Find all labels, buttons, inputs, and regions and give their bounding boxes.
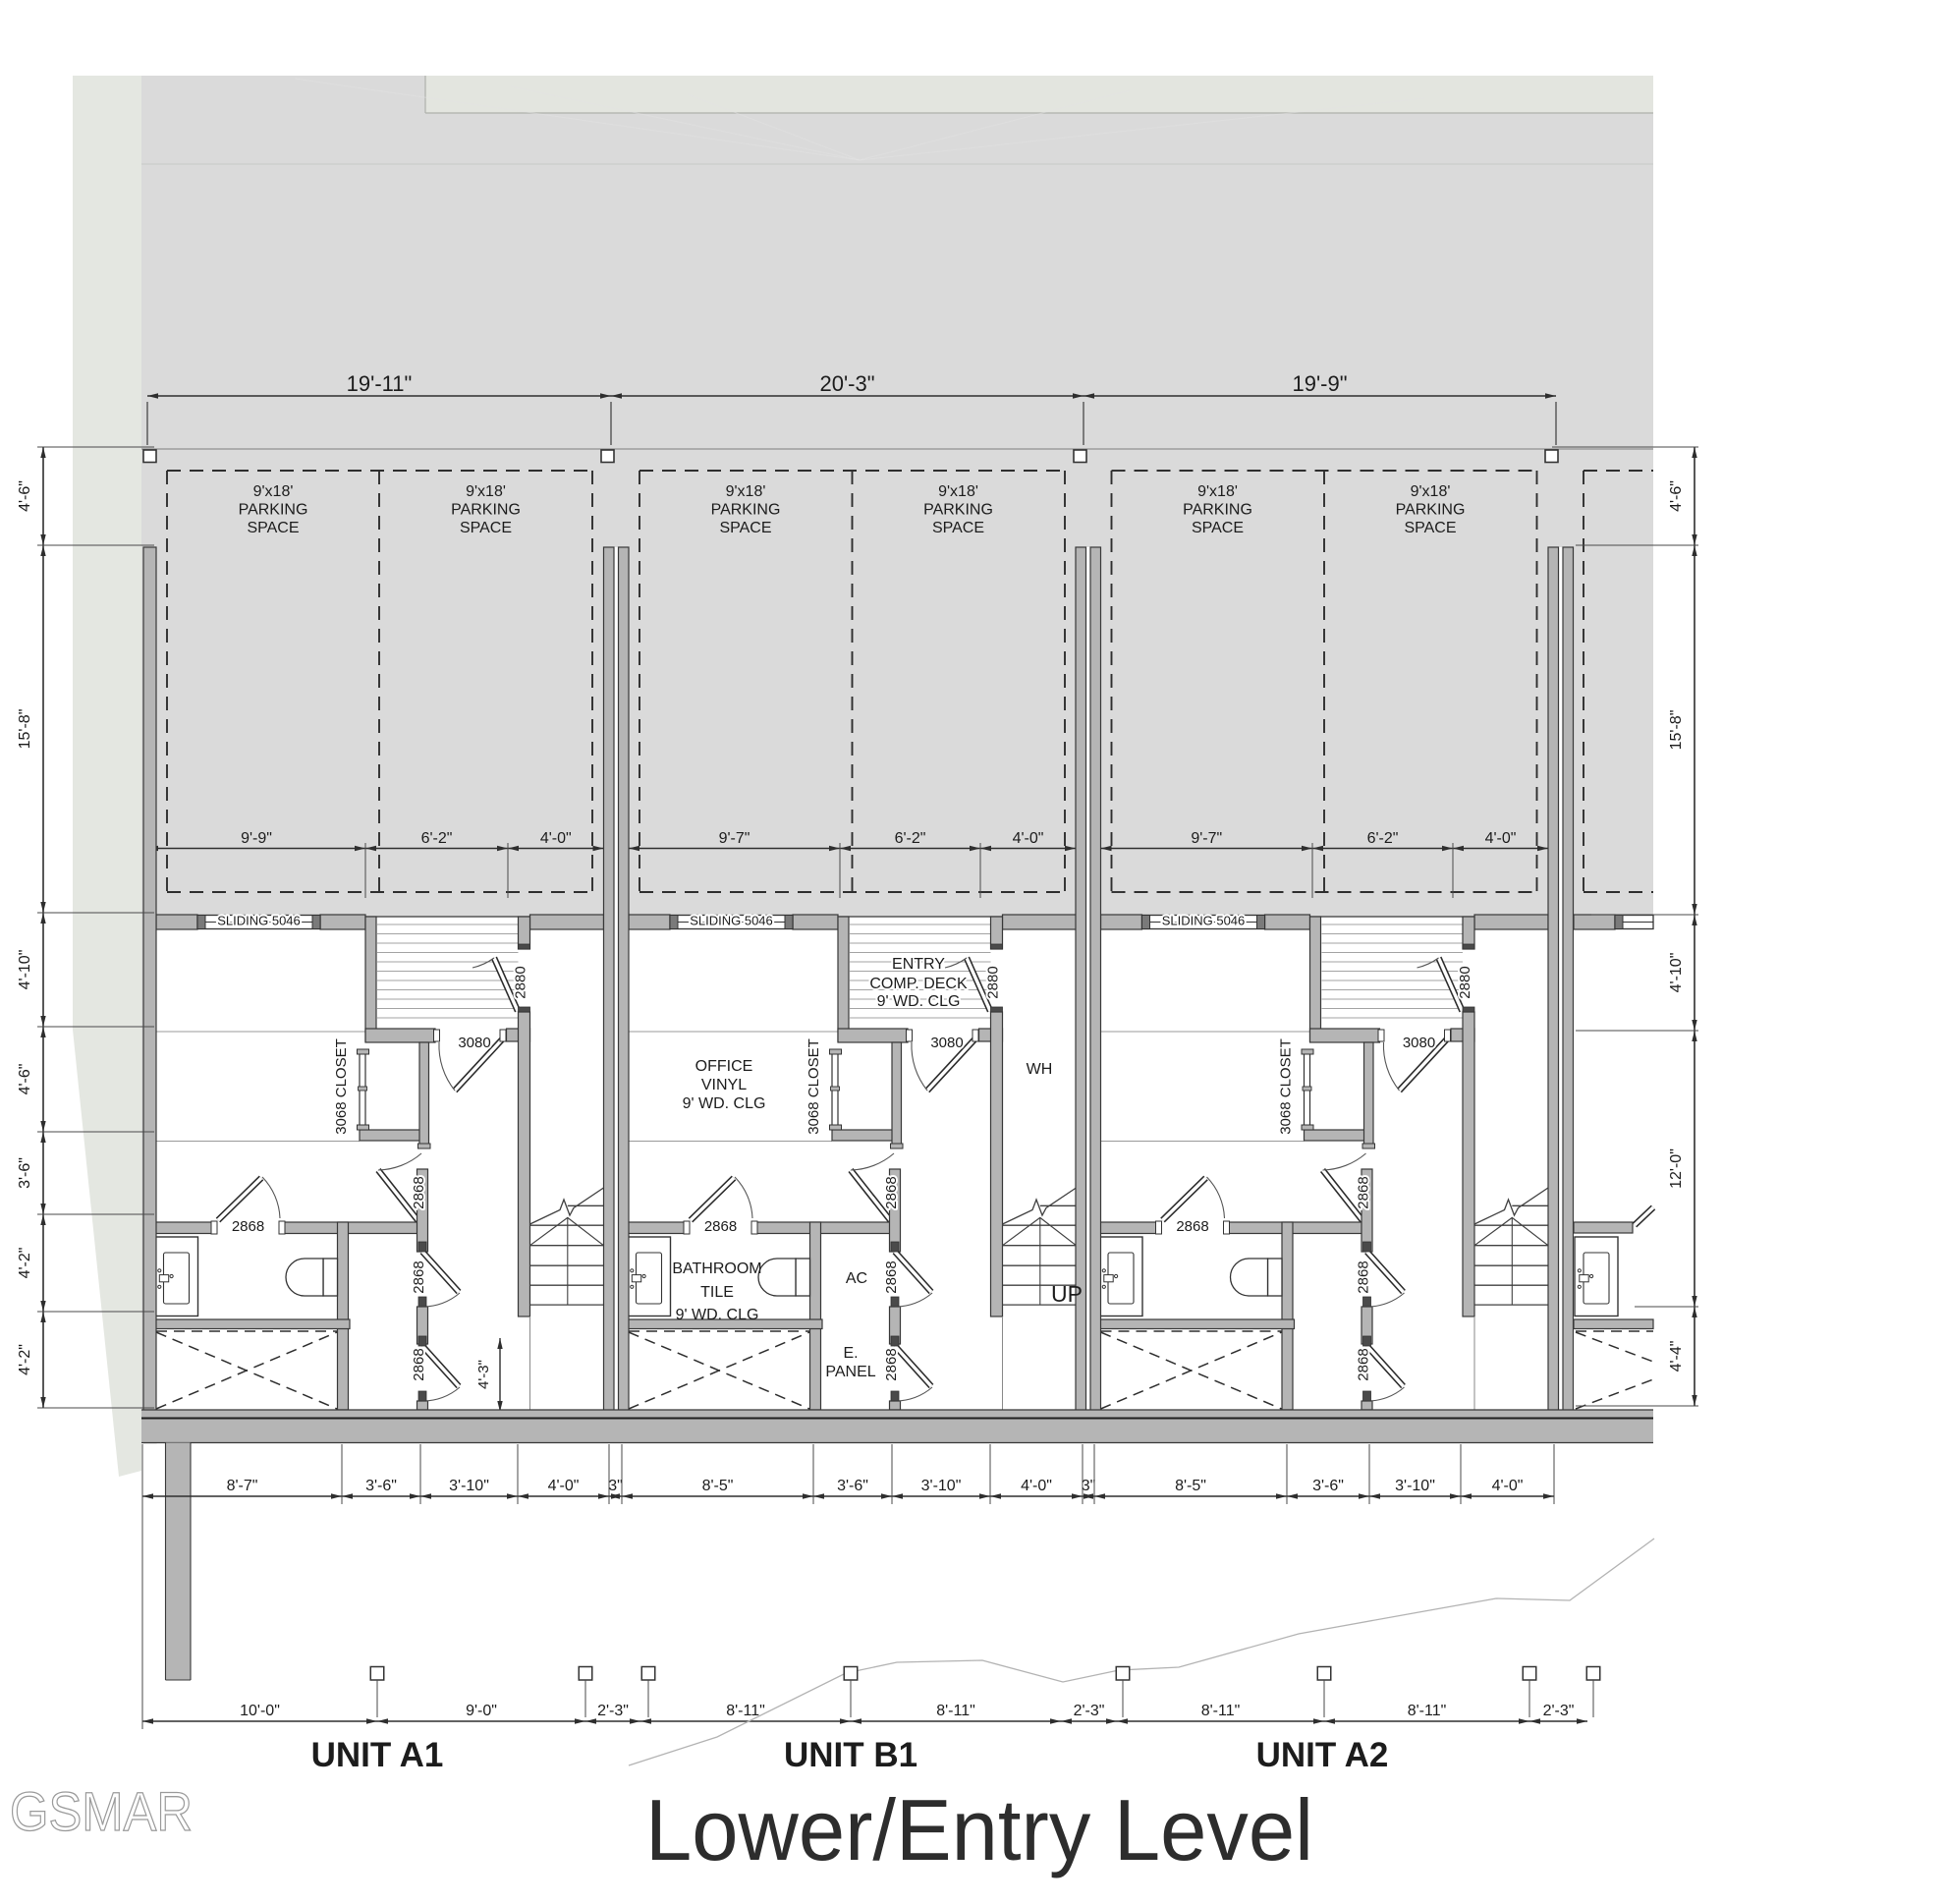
svg-text:UP: UP xyxy=(1051,1281,1083,1307)
svg-text:2'-3": 2'-3" xyxy=(1074,1703,1105,1719)
svg-text:9'-7": 9'-7" xyxy=(1191,830,1222,847)
svg-text:9'x18': 9'x18' xyxy=(466,483,506,500)
svg-text:UNIT A2: UNIT A2 xyxy=(1256,1736,1389,1774)
svg-text:2868: 2868 xyxy=(704,1218,737,1235)
svg-text:9' WD. CLG: 9' WD. CLG xyxy=(877,993,961,1010)
svg-text:UNIT B1: UNIT B1 xyxy=(784,1736,917,1774)
svg-text:6'-2": 6'-2" xyxy=(1367,830,1399,847)
svg-text:9'x18': 9'x18' xyxy=(938,483,978,500)
svg-text:12'-0": 12'-0" xyxy=(1668,1148,1685,1189)
svg-text:4'-6": 4'-6" xyxy=(17,1064,33,1095)
svg-text:8'-7": 8'-7" xyxy=(227,1478,258,1494)
svg-text:AC: AC xyxy=(846,1270,867,1287)
svg-text:3080: 3080 xyxy=(458,1035,490,1051)
svg-text:UNIT A1: UNIT A1 xyxy=(311,1736,444,1774)
svg-text:SLIDING 5046: SLIDING 5046 xyxy=(690,914,773,928)
svg-text:3": 3" xyxy=(1082,1478,1096,1494)
svg-text:2868: 2868 xyxy=(411,1176,427,1208)
svg-text:2880: 2880 xyxy=(513,966,529,998)
svg-text:9'x18': 9'x18' xyxy=(726,483,766,500)
svg-text:6'-2": 6'-2" xyxy=(421,830,453,847)
svg-text:SPACE: SPACE xyxy=(247,520,299,536)
svg-text:2868: 2868 xyxy=(411,1260,427,1293)
svg-text:GSMAR: GSMAR xyxy=(10,1780,193,1842)
svg-text:15'-8": 15'-8" xyxy=(17,709,33,750)
svg-text:3'-6": 3'-6" xyxy=(1312,1478,1344,1494)
svg-text:4'-10": 4'-10" xyxy=(17,950,33,990)
svg-text:PANEL: PANEL xyxy=(825,1364,875,1380)
svg-text:2868: 2868 xyxy=(1356,1348,1372,1380)
svg-text:SPACE: SPACE xyxy=(460,520,512,536)
svg-text:PARKING: PARKING xyxy=(1396,502,1466,519)
svg-text:6'-2": 6'-2" xyxy=(895,830,926,847)
svg-text:8'-11": 8'-11" xyxy=(1201,1703,1241,1719)
svg-text:4'-6": 4'-6" xyxy=(17,480,33,512)
svg-text:8'-11": 8'-11" xyxy=(1408,1703,1447,1719)
svg-text:4'-6": 4'-6" xyxy=(1668,480,1685,512)
svg-text:4'-3": 4'-3" xyxy=(475,1360,492,1389)
svg-text:9'x18': 9'x18' xyxy=(253,483,294,500)
svg-text:2868: 2868 xyxy=(883,1348,900,1380)
svg-text:3068 CLOSET: 3068 CLOSET xyxy=(1278,1038,1295,1135)
svg-text:19'-11": 19'-11" xyxy=(347,371,413,396)
svg-text:ENTRY: ENTRY xyxy=(892,956,945,973)
svg-text:BATHROOM: BATHROOM xyxy=(672,1260,761,1277)
svg-text:2880: 2880 xyxy=(1457,966,1473,998)
svg-text:9'x18': 9'x18' xyxy=(1411,483,1451,500)
svg-text:4'-0": 4'-0" xyxy=(1492,1478,1524,1494)
svg-text:20'-3": 20'-3" xyxy=(819,371,874,396)
svg-text:PARKING: PARKING xyxy=(239,502,308,519)
svg-text:2868: 2868 xyxy=(1176,1218,1208,1235)
svg-text:SLIDING 5046: SLIDING 5046 xyxy=(217,914,301,928)
svg-text:9'-7": 9'-7" xyxy=(719,830,750,847)
svg-text:4'-2": 4'-2" xyxy=(17,1248,33,1279)
svg-text:3080: 3080 xyxy=(930,1035,963,1051)
svg-text:3'-10": 3'-10" xyxy=(1395,1478,1435,1494)
svg-text:3068 CLOSET: 3068 CLOSET xyxy=(806,1038,822,1135)
svg-text:9' WD. CLG: 9' WD. CLG xyxy=(676,1307,759,1323)
svg-text:SLIDING 5046: SLIDING 5046 xyxy=(1162,914,1246,928)
svg-text:2868: 2868 xyxy=(232,1218,264,1235)
svg-text:COMP. DECK: COMP. DECK xyxy=(869,976,968,992)
svg-text:SPACE: SPACE xyxy=(1404,520,1456,536)
svg-text:10'-0": 10'-0" xyxy=(240,1703,280,1719)
svg-text:4'-0": 4'-0" xyxy=(1021,1478,1052,1494)
svg-text:3068 CLOSET: 3068 CLOSET xyxy=(333,1038,350,1135)
svg-text:3": 3" xyxy=(608,1478,623,1494)
svg-text:2880: 2880 xyxy=(985,966,1002,998)
svg-text:E.: E. xyxy=(843,1345,858,1362)
svg-text:PARKING: PARKING xyxy=(451,502,521,519)
svg-text:2'-3": 2'-3" xyxy=(1543,1703,1575,1719)
svg-text:PARKING: PARKING xyxy=(1183,502,1252,519)
svg-text:4'-4": 4'-4" xyxy=(1668,1341,1685,1372)
svg-text:PARKING: PARKING xyxy=(923,502,993,519)
svg-text:4'-2": 4'-2" xyxy=(17,1344,33,1375)
svg-text:19'-9": 19'-9" xyxy=(1292,371,1347,396)
svg-text:2868: 2868 xyxy=(1356,1176,1372,1208)
svg-text:3'-6": 3'-6" xyxy=(17,1157,33,1189)
svg-text:3'-6": 3'-6" xyxy=(365,1478,397,1494)
svg-text:VINYL: VINYL xyxy=(701,1077,747,1093)
svg-text:2868: 2868 xyxy=(411,1348,427,1380)
svg-text:SPACE: SPACE xyxy=(932,520,984,536)
svg-text:3'-10": 3'-10" xyxy=(449,1478,489,1494)
svg-text:2'-3": 2'-3" xyxy=(597,1703,629,1719)
svg-text:4'-0": 4'-0" xyxy=(1485,830,1517,847)
svg-text:8'-5": 8'-5" xyxy=(702,1478,734,1494)
svg-text:4'-0": 4'-0" xyxy=(540,830,572,847)
svg-text:TILE: TILE xyxy=(700,1284,734,1301)
svg-text:9'-9": 9'-9" xyxy=(241,830,272,847)
svg-text:3'-10": 3'-10" xyxy=(921,1478,962,1494)
svg-text:9' WD. CLG: 9' WD. CLG xyxy=(683,1095,766,1112)
svg-text:4'-0": 4'-0" xyxy=(548,1478,580,1494)
svg-text:Lower/Entry Level: Lower/Entry Level xyxy=(645,1781,1313,1878)
svg-text:2868: 2868 xyxy=(1356,1260,1372,1293)
svg-text:SPACE: SPACE xyxy=(719,520,771,536)
svg-text:15'-8": 15'-8" xyxy=(1668,710,1685,751)
svg-text:WH: WH xyxy=(1027,1061,1053,1078)
svg-text:9'-0": 9'-0" xyxy=(466,1703,497,1719)
svg-text:8'-11": 8'-11" xyxy=(936,1703,975,1719)
svg-text:3080: 3080 xyxy=(1403,1035,1435,1051)
svg-text:2868: 2868 xyxy=(883,1176,900,1208)
svg-text:4'-10": 4'-10" xyxy=(1668,953,1685,993)
svg-text:PARKING: PARKING xyxy=(711,502,781,519)
svg-text:4'-0": 4'-0" xyxy=(1013,830,1044,847)
svg-text:2868: 2868 xyxy=(883,1260,900,1293)
svg-text:8'-5": 8'-5" xyxy=(1175,1478,1206,1494)
svg-text:SPACE: SPACE xyxy=(1192,520,1244,536)
svg-text:3'-6": 3'-6" xyxy=(837,1478,868,1494)
svg-text:9'x18': 9'x18' xyxy=(1197,483,1238,500)
svg-text:OFFICE: OFFICE xyxy=(695,1058,753,1075)
